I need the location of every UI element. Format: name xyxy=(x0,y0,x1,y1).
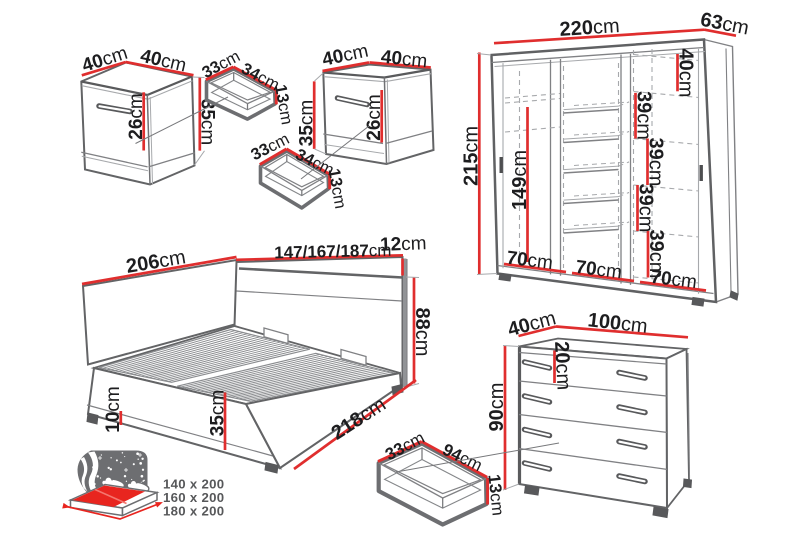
svg-text:215cm: 215cm xyxy=(461,126,483,186)
svg-text:39cm: 39cm xyxy=(634,184,656,233)
svg-text:26cm: 26cm xyxy=(126,93,147,139)
svg-text:149cm: 149cm xyxy=(509,150,531,210)
svg-text:39cm: 39cm xyxy=(644,138,666,187)
svg-text:20cm: 20cm xyxy=(550,341,575,391)
svg-text:88cm: 88cm xyxy=(411,308,433,357)
svg-text:147/167/187cm: 147/167/187cm xyxy=(274,241,392,263)
svg-text:220cm: 220cm xyxy=(559,15,620,41)
svg-text:12cm: 12cm xyxy=(380,233,427,256)
svg-text:26cm: 26cm xyxy=(364,94,385,140)
svg-text:40cm: 40cm xyxy=(675,49,697,98)
svg-text:35cm: 35cm xyxy=(297,100,318,146)
svg-text:10cm: 10cm xyxy=(103,386,124,432)
svg-text:35cm: 35cm xyxy=(197,99,218,145)
svg-text:180 x 200: 180 x 200 xyxy=(163,504,224,519)
svg-text:90cm: 90cm xyxy=(486,383,508,432)
svg-text:39cm: 39cm xyxy=(632,91,654,140)
svg-text:35cm: 35cm xyxy=(208,390,229,436)
